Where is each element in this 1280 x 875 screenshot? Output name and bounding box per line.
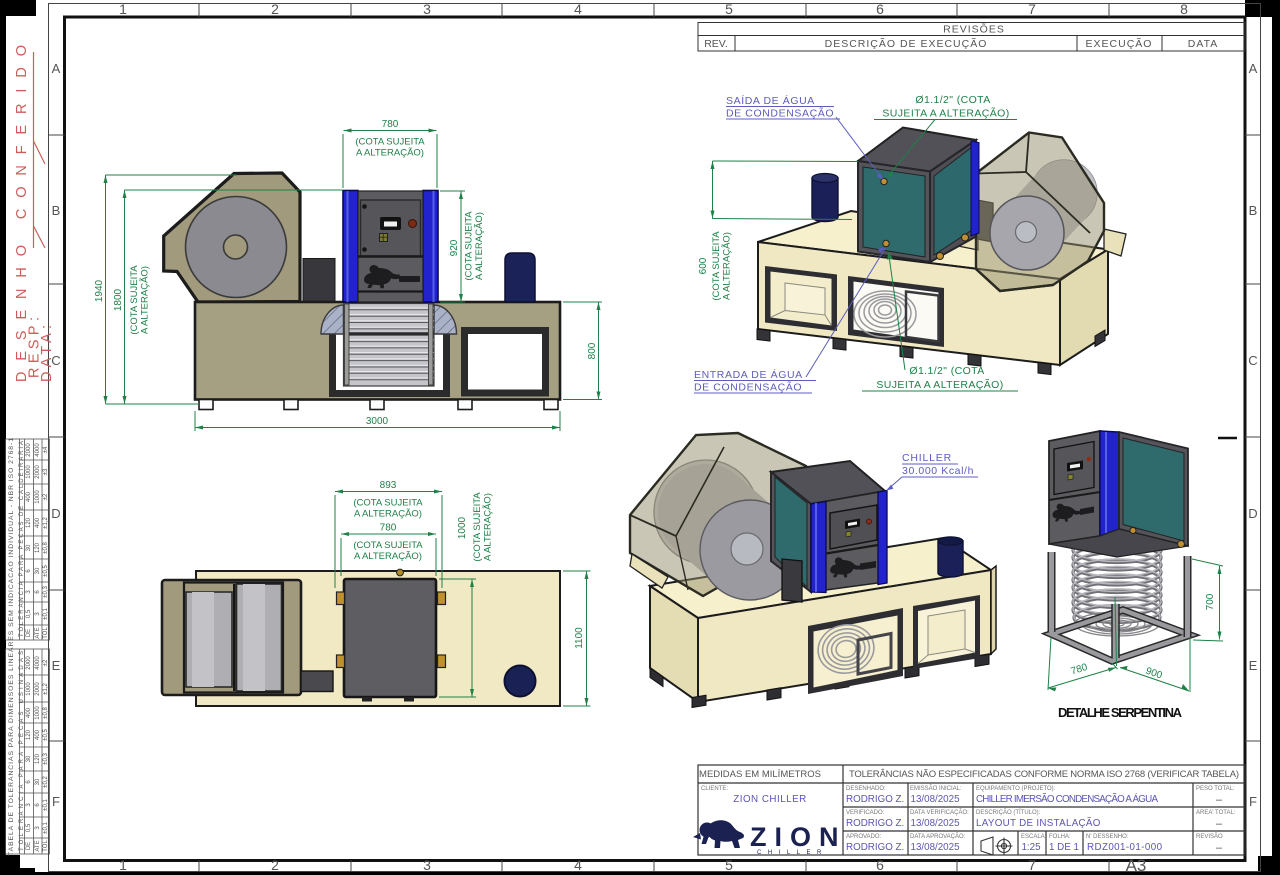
svg-text:RODRIGO Z.: RODRIGO Z. <box>846 794 904 805</box>
svg-text:±0,1: ±0,1 <box>43 799 49 811</box>
svg-text:DE CONDENSAÇÃO: DE CONDENSAÇÃO <box>694 381 802 394</box>
svg-text:CHILLER IMERSÃO CONDENSAÇÃO: CHILLER IMERSÃO CONDENSAÇÃO A ÁGUA <box>976 794 1158 805</box>
svg-text:30: 30 <box>26 544 32 551</box>
svg-text:0,5: 0,5 <box>26 609 32 618</box>
svg-text:FOLHA:: FOLHA: <box>1049 834 1071 840</box>
svg-text:3000: 3000 <box>366 416 389 427</box>
svg-text:400: 400 <box>35 517 41 528</box>
svg-text:±0,2: ±0,2 <box>43 776 49 788</box>
svg-text:2: 2 <box>271 1 279 17</box>
svg-text:±4: ±4 <box>43 446 49 453</box>
svg-text:2000: 2000 <box>35 465 41 479</box>
svg-text:A ALTERAÇÃO): A ALTERAÇÃO) <box>356 148 424 159</box>
svg-text:A ALTERAÇÃO): A ALTERAÇÃO) <box>354 509 422 520</box>
svg-text:30.000 Kcal/h: 30.000 Kcal/h <box>902 465 974 477</box>
svg-text:8: 8 <box>1180 1 1188 17</box>
svg-text:±1,2: ±1,2 <box>43 517 49 529</box>
svg-text:DATA:: DATA: <box>39 325 55 382</box>
svg-text:1:25: 1:25 <box>1021 842 1041 853</box>
svg-text:4000: 4000 <box>35 656 41 670</box>
svg-text:TABELA DE TOLERANCIAS PARA DIM: TABELA DE TOLERANCIAS PARA DIMENSOES LIN… <box>8 438 15 856</box>
svg-text:–: – <box>1216 842 1223 854</box>
svg-text:D: D <box>51 506 60 521</box>
svg-text:30: 30 <box>26 755 32 762</box>
svg-text:F: F <box>52 794 60 809</box>
svg-text:±0,3: ±0,3 <box>43 586 49 598</box>
svg-text:1000: 1000 <box>35 706 41 720</box>
svg-text:EXECUÇÃO: EXECUÇÃO <box>1086 37 1153 50</box>
svg-text:E: E <box>52 658 61 673</box>
svg-text:CLIENTE:: CLIENTE: <box>701 786 728 792</box>
svg-text:F: F <box>1249 794 1257 809</box>
svg-text:3: 3 <box>423 1 431 17</box>
svg-text:920: 920 <box>449 239 460 256</box>
svg-text:EQUIPAMENTO (PROJETO):: EQUIPAMENTO (PROJETO): <box>976 786 1056 792</box>
svg-text:ATE: ATE <box>35 840 41 851</box>
svg-text:A ALTERAÇÃO): A ALTERAÇÃO) <box>722 232 733 300</box>
svg-text:1000: 1000 <box>26 682 32 696</box>
svg-text:±0,3: ±0,3 <box>43 753 49 765</box>
svg-text:4: 4 <box>574 1 582 17</box>
svg-text:PESO TOTAL:: PESO TOTAL: <box>1196 786 1235 792</box>
svg-text:TOLERÂNCIAS NÃO ESPECIFICADA: TOLERÂNCIAS NÃO ESPECIFICADAS CONFORME N… <box>849 769 1239 780</box>
svg-text:DESCRIÇÃO (TÍTULO):: DESCRIÇÃO (TÍTULO): <box>976 809 1041 816</box>
svg-text:±0,8: ±0,8 <box>43 542 49 554</box>
svg-text:120: 120 <box>26 517 32 528</box>
svg-text:LAYOUT DE INSTALAÇÃO: LAYOUT DE INSTALAÇÃO <box>976 818 1101 829</box>
svg-text:TOL: TOL <box>43 840 49 852</box>
svg-text:DATA APROVAÇÃO:: DATA APROVAÇÃO: <box>910 833 966 840</box>
svg-text:400: 400 <box>26 707 32 718</box>
svg-text:2000: 2000 <box>26 443 32 457</box>
svg-text:1000: 1000 <box>35 490 41 504</box>
svg-text:7: 7 <box>1028 857 1036 873</box>
svg-text:A ALTERAÇÃO): A ALTERAÇÃO) <box>140 266 151 334</box>
svg-text:–: – <box>1216 818 1223 830</box>
svg-text:893: 893 <box>380 480 397 491</box>
svg-text:A ALTERAÇÃO): A ALTERAÇÃO) <box>354 551 422 562</box>
svg-text:REVISÃO: REVISÃO <box>1196 833 1223 840</box>
svg-text:C: C <box>1248 353 1257 368</box>
svg-text:120: 120 <box>26 729 32 740</box>
svg-text:30: 30 <box>35 778 41 785</box>
svg-text:13/08/2025: 13/08/2025 <box>911 794 961 805</box>
svg-text:ENTRADA DE ÁGUA: ENTRADA DE ÁGUA <box>694 368 803 381</box>
svg-text:(COTA SUJEITA: (COTA SUJEITA <box>711 231 722 301</box>
svg-text:TOL: TOL <box>43 627 49 639</box>
svg-text:13/08/2025: 13/08/2025 <box>911 818 961 829</box>
svg-text:1000: 1000 <box>26 465 32 479</box>
svg-text:±0,1: ±0,1 <box>43 822 49 834</box>
svg-text:800: 800 <box>587 342 598 359</box>
svg-text:1 DE 1: 1 DE 1 <box>1049 842 1079 853</box>
svg-text:ESCALA:: ESCALA: <box>1021 834 1047 840</box>
svg-text:SUJEITA A ALTERAÇÃO): SUJEITA A ALTERAÇÃO) <box>882 107 1009 120</box>
svg-text:2000: 2000 <box>35 682 41 696</box>
svg-text:2: 2 <box>271 857 279 873</box>
svg-text:DATA: DATA <box>1188 38 1218 50</box>
svg-text:±0,5: ±0,5 <box>43 729 49 741</box>
svg-text:REV.: REV. <box>704 38 728 50</box>
svg-text:DATA VERIFICAÇÃO:: DATA VERIFICAÇÃO: <box>910 809 969 816</box>
svg-text:±0,5: ±0,5 <box>43 565 49 577</box>
svg-text:(COTA SUJEITA: (COTA SUJEITA <box>353 498 423 509</box>
svg-text:DE: DE <box>26 629 32 637</box>
svg-text:1940: 1940 <box>94 279 105 302</box>
svg-text:780: 780 <box>382 119 399 130</box>
svg-text:120: 120 <box>35 753 41 764</box>
svg-text:7: 7 <box>1028 1 1036 17</box>
svg-text:REVISÕES: REVISÕES <box>943 23 1005 36</box>
svg-text:700: 700 <box>1205 593 1216 610</box>
svg-text:30: 30 <box>35 567 41 574</box>
svg-text:(COTA SUJEITA: (COTA SUJEITA <box>464 211 475 281</box>
svg-text:(COTA SUJEITA: (COTA SUJEITA <box>129 265 140 335</box>
svg-text:±1,2: ±1,2 <box>43 683 49 695</box>
svg-text:D: D <box>1248 506 1257 521</box>
svg-text:±3: ±3 <box>43 468 49 475</box>
svg-text:B: B <box>1249 203 1258 218</box>
svg-text:1100: 1100 <box>574 627 585 649</box>
svg-text:SAÍDA DE ÁGUA: SAÍDA DE ÁGUA <box>726 94 815 107</box>
svg-text:(COTA SUJEITA: (COTA SUJEITA <box>472 492 483 562</box>
svg-text:A3: A3 <box>1126 856 1147 875</box>
svg-text:EMISSÃO INICIAL:: EMISSÃO INICIAL: <box>910 785 962 792</box>
svg-text:B: B <box>52 203 61 218</box>
svg-text:13/08/2025: 13/08/2025 <box>911 842 961 853</box>
svg-text:(COTA SUJEITA: (COTA SUJEITA <box>353 540 423 551</box>
svg-text:CHILLER: CHILLER <box>757 850 828 856</box>
svg-text:4: 4 <box>574 857 582 873</box>
svg-text:3: 3 <box>423 857 431 873</box>
svg-text:RODRIGO Z.: RODRIGO Z. <box>846 842 904 853</box>
svg-text:ATE: ATE <box>35 627 41 638</box>
svg-text:1800: 1800 <box>113 288 124 311</box>
svg-text:DETALHE SERPENTINA: DETALHE SERPENTINA <box>1058 705 1183 720</box>
svg-text:AREA' TOTAL:: AREA' TOTAL: <box>1196 810 1236 816</box>
svg-text:A: A <box>1249 61 1258 76</box>
svg-text:±0,8: ±0,8 <box>43 707 49 719</box>
svg-text:SUJEITA A ALTERAÇÃO): SUJEITA A ALTERAÇÃO) <box>876 378 1003 391</box>
svg-text:6: 6 <box>876 857 884 873</box>
svg-text:4000: 4000 <box>35 443 41 457</box>
svg-text:400: 400 <box>35 729 41 740</box>
svg-text:DE: DE <box>26 842 32 850</box>
svg-text:±2: ±2 <box>43 493 49 500</box>
svg-text:±0,1: ±0,1 <box>43 608 49 620</box>
svg-text:1: 1 <box>119 1 127 17</box>
svg-text:±2: ±2 <box>43 659 49 666</box>
svg-text:(COTA SUJEITA: (COTA SUJEITA <box>355 137 425 148</box>
svg-text:Ø1.1/2" (COTA: Ø1.1/2" (COTA <box>909 365 984 377</box>
svg-text:5: 5 <box>725 1 733 17</box>
svg-text:ZION CHILLER: ZION CHILLER <box>733 794 807 805</box>
svg-text:APROVADO:: APROVADO: <box>846 834 882 840</box>
svg-text:ZION: ZION <box>750 822 847 852</box>
svg-text:600: 600 <box>698 257 709 274</box>
svg-text:CHILLER: CHILLER <box>902 452 952 464</box>
svg-text:780: 780 <box>380 523 397 534</box>
svg-text:VERIFICADO:: VERIFICADO: <box>846 810 885 816</box>
svg-text:1: 1 <box>119 857 127 873</box>
svg-text:E: E <box>1249 658 1258 673</box>
svg-text:120: 120 <box>35 542 41 553</box>
svg-text:0,5: 0,5 <box>26 823 32 832</box>
svg-text:A: A <box>52 61 61 76</box>
svg-text:N' DESSENHO:: N' DESSENHO: <box>1086 834 1129 840</box>
svg-text:DESENHADO:: DESENHADO: <box>846 786 886 792</box>
svg-text:DESCRIÇÃO DE EXECUÇÃO: DESCRIÇÃO DE EXECUÇÃO <box>825 37 988 50</box>
svg-text:RODRIGO Z.: RODRIGO Z. <box>846 818 904 829</box>
svg-text:2000: 2000 <box>26 656 32 670</box>
svg-text:400: 400 <box>26 491 32 502</box>
svg-text:Ø1.1/2" (COTA: Ø1.1/2" (COTA <box>915 94 990 106</box>
svg-text:A ALTERAÇÃO): A ALTERAÇÃO) <box>483 493 494 561</box>
svg-text:6: 6 <box>876 1 884 17</box>
svg-text:–: – <box>1216 794 1223 806</box>
svg-text:A ALTERAÇÃO): A ALTERAÇÃO) <box>474 212 485 280</box>
svg-text:MEDIDAS EM MILÍMETROS: MEDIDAS EM MILÍMETROS <box>699 769 821 780</box>
svg-text:RDZ001-01-000: RDZ001-01-000 <box>1087 842 1163 853</box>
svg-text:DE CONDENSAÇÃO: DE CONDENSAÇÃO <box>726 107 834 120</box>
svg-text:5: 5 <box>725 857 733 873</box>
svg-text:1000: 1000 <box>457 516 468 539</box>
